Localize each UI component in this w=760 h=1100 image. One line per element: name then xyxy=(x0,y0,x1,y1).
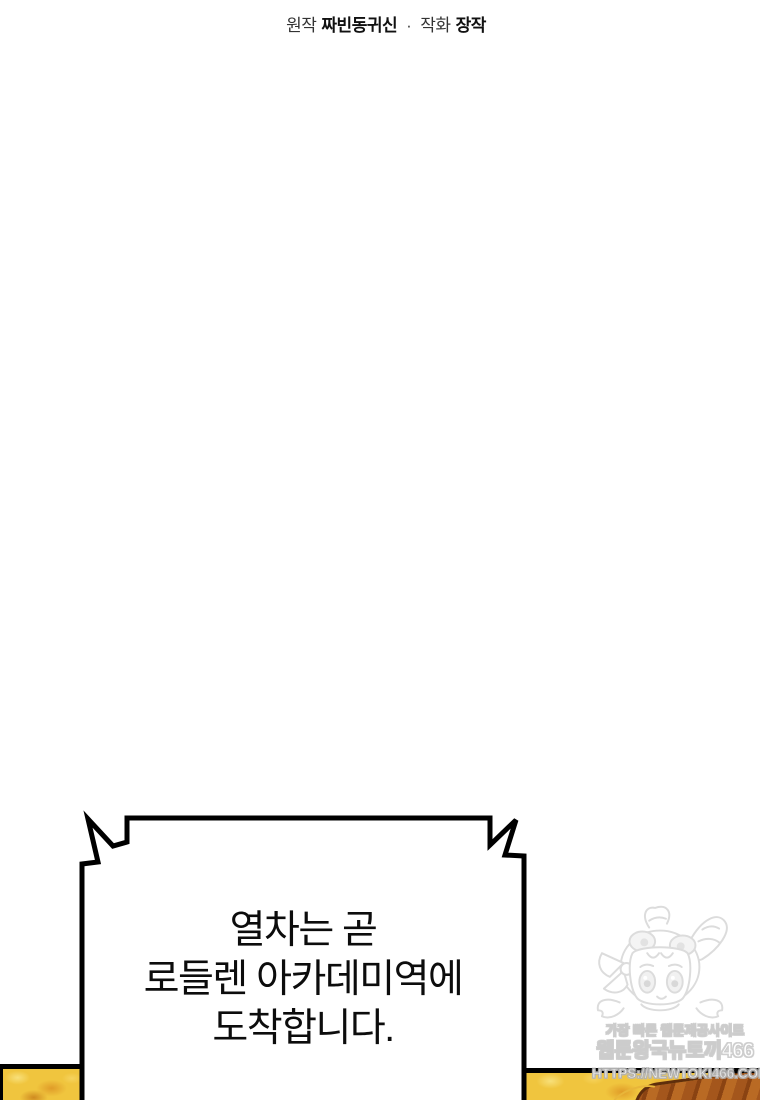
webtoon-page: 원작짜빈동귀신·작화장작 열차는 곧 로들렌 아카데미역에 도착합니다. xyxy=(0,0,760,1100)
speech-line-2: 로들렌 아카데미역에 xyxy=(84,955,522,1004)
site-watermark: 가장 빠른 웹툰제공사이트 웹툰왕국뉴토끼466 HTTPS://NEWTOKI… xyxy=(592,1022,758,1082)
watermark-site-name: 웹툰왕국뉴토끼466 xyxy=(592,1040,758,1063)
watermark-tagline: 가장 빠른 웹툰제공사이트 xyxy=(592,1022,758,1039)
watermark-url: HTTPS://NEWTOKI466.COM xyxy=(592,1066,758,1082)
watermark-mascot-icon xyxy=(588,902,736,1030)
speech-line-3: 도착합니다. xyxy=(84,1004,522,1053)
speech-line-1: 열차는 곧 xyxy=(84,906,522,955)
speech-bubble-text: 열차는 곧 로들렌 아카데미역에 도착합니다. xyxy=(84,906,522,1053)
